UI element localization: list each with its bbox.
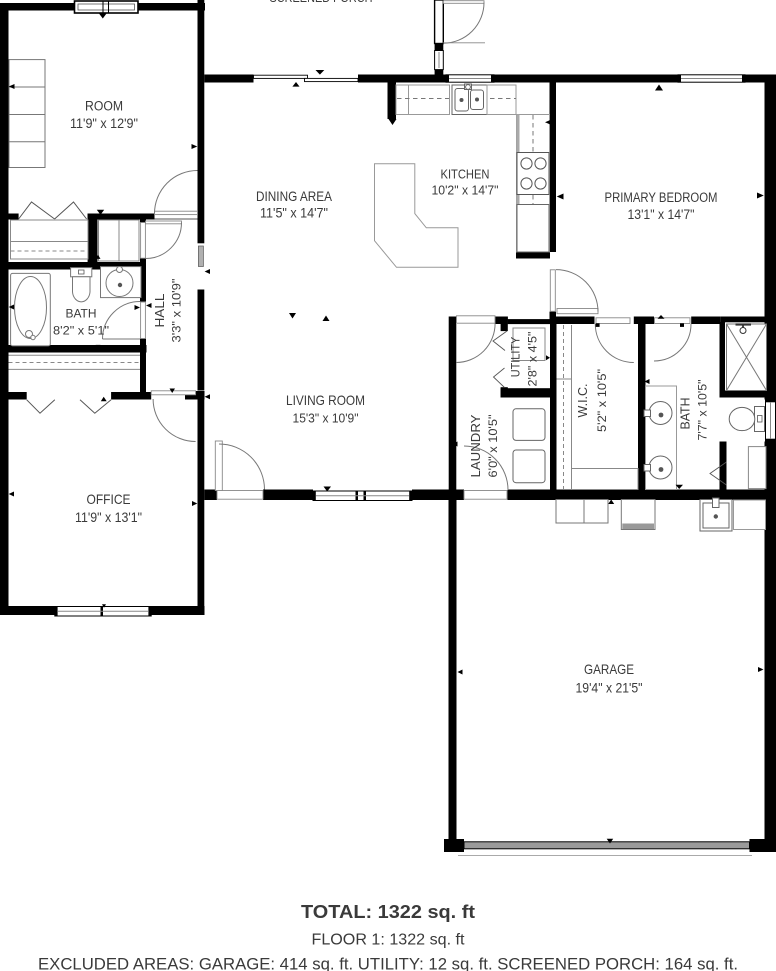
svg-text:19'4" x 21'5": 19'4" x 21'5" <box>576 681 643 696</box>
svg-text:7'7" x 10'5": 7'7" x 10'5" <box>696 380 710 441</box>
svg-text:10'2" x 14'7": 10'2" x 14'7" <box>432 182 499 197</box>
svg-text:OFFICE: OFFICE <box>87 491 131 507</box>
svg-text:W.I.C.: W.I.C. <box>576 384 590 418</box>
svg-text:6'0" x 10'5": 6'0" x 10'5" <box>486 415 500 478</box>
svg-text:3'3" x 10'9": 3'3" x 10'9" <box>170 279 184 343</box>
svg-text:UTILITY: UTILITY <box>509 337 523 378</box>
svg-text:KITCHEN: KITCHEN <box>441 166 490 181</box>
svg-text:11'9" x 12'9": 11'9" x 12'9" <box>70 116 138 131</box>
svg-text:SCREENED PORCH: SCREENED PORCH <box>270 0 373 5</box>
svg-text:TOTAL: 1322 sq. ft: TOTAL: 1322 sq. ft <box>301 901 475 922</box>
svg-text:13'1" x 14'7": 13'1" x 14'7" <box>628 207 695 222</box>
svg-text:BATH: BATH <box>679 398 693 430</box>
svg-text:8'2" x 5'1": 8'2" x 5'1" <box>53 323 109 337</box>
svg-text:GARAGE: GARAGE <box>584 661 634 677</box>
svg-text:BATH: BATH <box>66 309 97 321</box>
svg-text:DINING AREA: DINING AREA <box>256 188 333 204</box>
svg-text:11'5" x 14'7": 11'5" x 14'7" <box>260 206 328 221</box>
svg-text:5'2" x 10'5": 5'2" x 10'5" <box>595 369 609 432</box>
svg-text:ROOM: ROOM <box>85 99 123 114</box>
svg-text:LAUNDRY: LAUNDRY <box>469 414 483 478</box>
svg-text:FLOOR 1: 1322 sq. ft: FLOOR 1: 1322 sq. ft <box>312 932 466 949</box>
svg-text:15'3" x 10'9": 15'3" x 10'9" <box>293 411 359 426</box>
svg-text:LIVING ROOM: LIVING ROOM <box>286 392 365 408</box>
svg-text:11'9" x 13'1": 11'9" x 13'1" <box>75 510 142 525</box>
svg-text:PRIMARY BEDROOM: PRIMARY BEDROOM <box>605 190 718 205</box>
svg-text:EXCLUDED AREAS: GARAGE: 414 sq: EXCLUDED AREAS: GARAGE: 414 sq. ft. UTIL… <box>38 956 738 971</box>
svg-text:HALL: HALL <box>153 293 167 327</box>
svg-text:2'8" x 4'5": 2'8" x 4'5" <box>528 332 540 387</box>
